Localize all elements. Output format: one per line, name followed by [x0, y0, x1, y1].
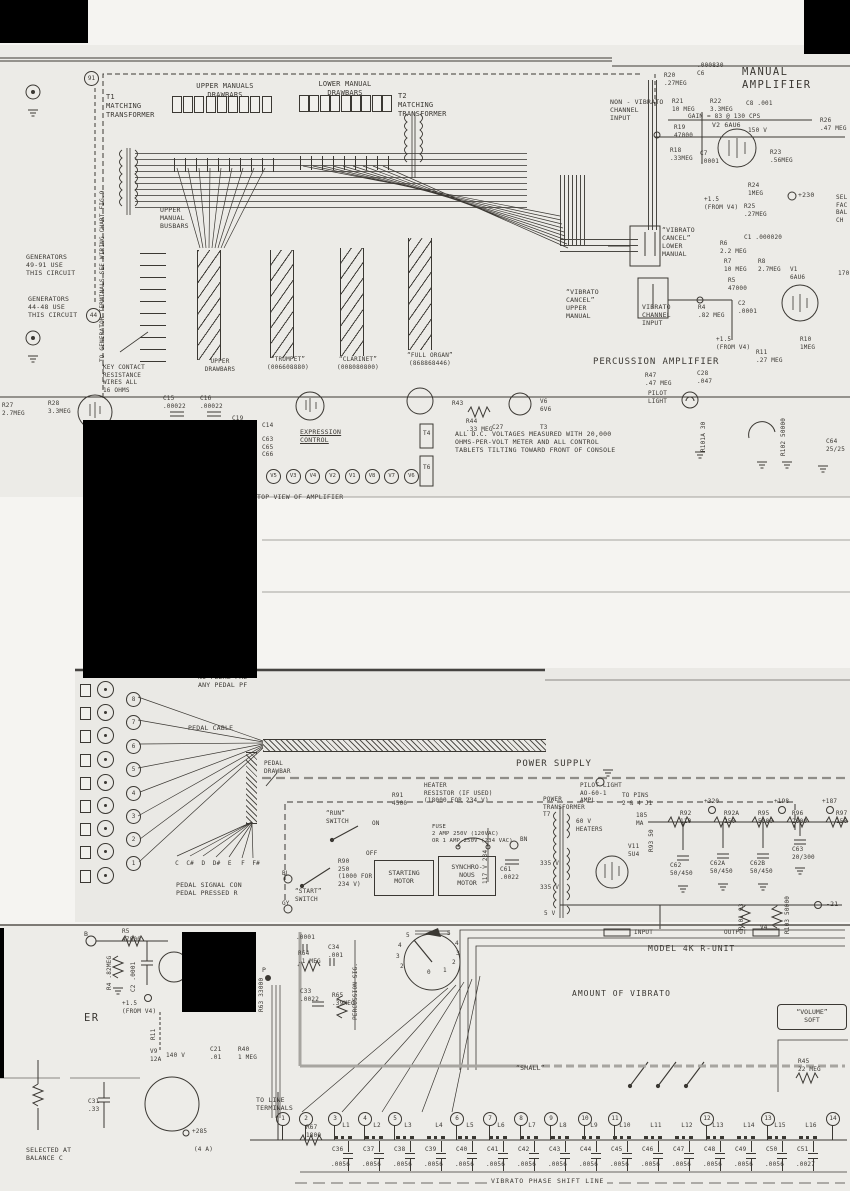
cap-value-C40: .0056	[455, 1161, 474, 1169]
redaction-top-right	[804, 0, 850, 54]
drawbar-lower	[330, 95, 340, 112]
cap-value-C43: .0056	[548, 1161, 567, 1169]
line-terminal-6: 6	[450, 1112, 464, 1126]
coil-label-L14: L14	[741, 1122, 757, 1130]
r64-label: R64 .1 MEG	[298, 950, 321, 965]
pedal-generator	[97, 797, 114, 814]
vibrato-channel-input-label: VIBRATO CHANNEL INPUT	[642, 303, 671, 327]
plus15-v2-label: +1.5 (FROM V4)	[704, 196, 738, 211]
r27-label: R27 2.7MEG	[2, 402, 25, 417]
top-view-label: TOP VIEW OF AMPLIFIER	[257, 493, 343, 501]
pedal-note-C: C	[172, 860, 182, 868]
schematic-scan: MANUAL AMPLIFIER T1 MATCHING TRANSFORMER…	[0, 0, 850, 1191]
cap-value-C37: .0056	[362, 1161, 381, 1169]
c15-label: C15 .00022	[163, 395, 186, 410]
model-4k-label: MODEL 4K R-UNIT	[648, 944, 735, 954]
c16-label: C16 .00022	[200, 395, 223, 410]
cap-symbol-C44	[591, 1153, 601, 1159]
c28-label: C28 .047	[697, 370, 712, 385]
tube-v6: V6	[404, 469, 419, 484]
pedal-note-F#: F#	[251, 860, 261, 868]
r6-label: R6 2.2 MEG	[720, 240, 747, 255]
cap-value-C45: .0056	[610, 1161, 629, 1169]
r47-label: R47 .47 MEG	[645, 372, 672, 387]
coil-L3	[396, 1136, 414, 1144]
coil-L9	[582, 1136, 600, 1144]
r93-label: R93 50	[648, 829, 656, 852]
plus15-v1-label: +1.5 (FROM V4)	[716, 336, 750, 351]
w335b-label: 335 V	[540, 884, 559, 892]
redaction-lower	[182, 932, 256, 1012]
cap-symbol-C41	[498, 1153, 508, 1159]
sel-fac-label: SEL FAC BAL CH	[836, 194, 847, 224]
cap-symbol-C36	[343, 1153, 353, 1159]
c34-label: C34 .001	[328, 944, 343, 959]
gen91-terminal: 91	[84, 71, 99, 86]
v140-label: 140 V	[166, 1052, 185, 1060]
pedal-note-D: D	[198, 860, 208, 868]
r92-label: R92 110	[680, 810, 691, 825]
redaction-left-sliver	[0, 928, 4, 1078]
r25-label: R25 .27MEG	[744, 203, 767, 218]
r11b-label: R11	[150, 1029, 158, 1040]
drawbar-upper	[172, 96, 182, 113]
v4-label: V4	[760, 924, 768, 932]
r7-label: R7 10 MEG	[724, 258, 747, 273]
rotary-pos-5: 5	[406, 932, 410, 940]
t1-label: T1 MATCHING TRANSFORMER	[106, 93, 155, 119]
r26-label: R26 .47 MEG	[820, 117, 847, 132]
cap-label-C49: C49	[735, 1146, 746, 1154]
pedal-key-switch	[80, 870, 91, 883]
cap-value-C44: .0056	[579, 1161, 598, 1169]
plus285-label: +285	[192, 1128, 207, 1136]
tube-v3: V3	[286, 469, 301, 484]
pedal-terminal-8: 8	[126, 692, 141, 707]
c62-label: C62 50/450	[670, 862, 693, 877]
minus21-label: -21	[826, 900, 838, 908]
to-generator-note: TO GENERATOR TERMINALS SEE WIRING CHART …	[99, 190, 107, 362]
pedal-note-C#: C#	[185, 860, 195, 868]
r5-label: R5 47000	[728, 277, 747, 292]
c2b-label: C2 .0001	[130, 962, 138, 993]
w335a-label: 335 V	[540, 860, 559, 868]
pedal-key-switch	[80, 846, 91, 859]
r20-label: R20 .27MEG	[664, 72, 687, 87]
pedal-terminal-3: 3	[126, 809, 141, 824]
bl-label: BL	[282, 870, 290, 878]
coil-label-L3: L3	[400, 1122, 416, 1130]
coil-L4	[427, 1136, 445, 1144]
on-label: ON	[372, 820, 380, 828]
cap-label-C46: C46	[642, 1146, 653, 1154]
cap-symbol-C40	[467, 1153, 477, 1159]
volume-soft-tablet: “VOLUME” SOFT	[777, 1004, 847, 1030]
cap-value-C46: .0056	[641, 1161, 660, 1169]
lower-drawbars-title: LOWER MANUAL DRAWBARS	[305, 80, 385, 98]
c31-label: C31 .33	[88, 1098, 99, 1113]
pedal-generator	[97, 751, 114, 768]
drawbar-lower	[309, 95, 319, 112]
line-terminal-4: 4	[358, 1112, 372, 1126]
pedal-generator	[97, 681, 114, 698]
r101-label: R101 93	[738, 903, 746, 930]
v1-plate-voltage: 170	[838, 270, 849, 278]
r90-label: R90 250 (1000 FOR 234 V)	[338, 858, 372, 888]
cap-label-C37: C37	[363, 1146, 374, 1154]
t4-label: T4	[423, 430, 431, 438]
w5-label: 5 V	[544, 910, 555, 918]
input-label: INPUT	[634, 929, 653, 937]
bn-label: BN	[520, 836, 528, 844]
drawbar-lower	[320, 95, 330, 112]
c8-label: C8 .001	[746, 100, 773, 108]
c7-label: C7 .0001	[700, 150, 719, 165]
line-terminal-2: 2	[299, 1112, 313, 1126]
c2-label: C2 .0001	[738, 300, 757, 315]
pedal-drawbar-label: PEDAL DRAWBAR	[264, 760, 291, 775]
c63-65-66-label: C63 C65 C66	[262, 436, 273, 459]
cap-symbol-C48	[715, 1153, 725, 1159]
plus230-label: +230	[798, 191, 814, 199]
percussion-amplifier-title: PERCUSSION AMPLIFIER	[593, 357, 719, 368]
small-label: “SMALL”	[516, 1064, 545, 1072]
r67-label: R67 1800	[306, 1124, 321, 1139]
line-terminal-14: 14	[826, 1112, 840, 1126]
cap-symbol-C39	[436, 1153, 446, 1159]
gen44-terminal: 44	[86, 308, 101, 323]
pilot-light2-label: PILOT LIGHT AO-60-1 AMPL.	[580, 782, 622, 805]
expression-control-label: EXPRESSION CONTROL	[300, 428, 341, 444]
drawbar-lower	[372, 95, 382, 112]
coil-L12	[675, 1136, 693, 1144]
c62b-label: C62B 50/450	[750, 860, 773, 875]
drawbar-lower	[341, 95, 351, 112]
pedal-terminal-1: 1	[126, 856, 141, 871]
pedal-signal-note: PEDAL SIGNAL CON PEDAL PRESSED R	[176, 881, 242, 897]
ma185-label: 185 MA	[636, 812, 647, 827]
line-terminal-8: 8	[514, 1112, 528, 1126]
plus320-label: +320	[704, 798, 719, 806]
r4b-label: R4 .82MEG	[106, 956, 114, 990]
v1-label: V1 6AU6	[790, 266, 805, 281]
starting-motor-box: STARTING MOTOR	[374, 860, 434, 896]
r91-label: R91 4500	[392, 792, 407, 807]
c6-label: .000830 C6	[697, 62, 724, 77]
line-terminal-stem	[282, 1125, 283, 1140]
pedal-key-switch	[80, 684, 91, 697]
pedal-key-switch	[80, 730, 91, 743]
phase-line-title: VIBRATO PHASE SHIFT LINE	[488, 1177, 607, 1185]
coil-label-L15: L15	[772, 1122, 788, 1130]
redaction-top-left	[0, 0, 88, 43]
upper-drawbars-preset-label: UPPER DRAWBARS	[195, 358, 245, 373]
cap-label-C48: C48	[704, 1146, 715, 1154]
coil-label-L8: L8	[555, 1122, 571, 1130]
drawbar-lower	[361, 95, 371, 112]
tube-v8: V8	[365, 469, 380, 484]
cap-value-C50: .0056	[765, 1161, 784, 1169]
r19-label: R19 47000	[674, 124, 693, 139]
drawbar-lower	[351, 95, 361, 112]
v6-tube-label: V6 6V6	[540, 398, 551, 413]
fuse-note: FUSE 2 AMP 250V (120VAC) OR 1 AMP 250V (…	[432, 824, 513, 845]
line-terminal-11: 11	[608, 1112, 622, 1126]
cap-value-C48: .0056	[703, 1161, 722, 1169]
cap-symbol-C38	[405, 1153, 415, 1159]
pedal-note-D#: D#	[212, 860, 222, 868]
to-pins-label: TO PINS 2 & 4 J1	[622, 792, 653, 807]
c64-label: C64 25/25	[826, 438, 845, 453]
pedal-key-switch	[80, 823, 91, 836]
page3-wires	[0, 925, 850, 1183]
r23-label: R23 .56MEG	[770, 149, 793, 164]
rotary-pos-4: 4	[455, 940, 459, 948]
r95-label: R95 5000	[758, 810, 773, 825]
b-terminal-label: B	[84, 930, 88, 938]
rotary-pos-3: 3	[456, 950, 460, 958]
key-contact-note: KEY CONTACT RESISTANCE WIRES ALL 16 OHMS	[103, 364, 145, 394]
c33-label: C33 .0022	[300, 988, 319, 1003]
coil-L7	[520, 1136, 538, 1144]
coil-L13	[706, 1136, 724, 1144]
start-switch-label: “START” SWITCH	[295, 888, 322, 903]
cap-label-C39: C39	[425, 1146, 436, 1154]
pedal-cable-label: PEDAL CABLE	[188, 724, 233, 732]
heaters-60v-label: 60 V HEATERS	[576, 818, 603, 833]
r24-label: R24 1MEG	[748, 182, 763, 197]
power-transformer-label: POWER TRANSFORMER T7	[543, 796, 585, 819]
plus198-label: +198	[774, 798, 789, 806]
r22-label: R22 3.3MEG	[710, 98, 733, 113]
c0001-label: .0001	[296, 934, 315, 942]
r96-label: R96 2000	[792, 810, 807, 825]
pilot-light1-label: PILOT LIGHT	[648, 390, 667, 405]
r5b-label: R5 47000	[122, 928, 141, 943]
c62a-label: C62A 50/450	[710, 860, 733, 875]
redaction-center	[83, 420, 257, 678]
coil-label-L5: L5	[462, 1122, 478, 1130]
coil-label-L12: L12	[679, 1122, 695, 1130]
cap-symbol-C50	[777, 1153, 787, 1159]
line-terminal-stem	[456, 1125, 457, 1140]
cap-label-C43: C43	[549, 1146, 560, 1154]
gen91-note: GENERATORS 49-91 USE THIS CIRCUIT	[26, 253, 75, 277]
pedal-note-F: F	[238, 860, 248, 868]
line-terminal-7: 7	[483, 1112, 497, 1126]
cap-label-C42: C42	[518, 1146, 529, 1154]
v2-plate-voltage: 150 V	[748, 127, 767, 135]
cap-symbol-C47	[684, 1153, 694, 1159]
vibrato-cancel-lower-label: “VIBRATO CANCEL” LOWER MANUAL	[662, 226, 695, 259]
p-terminal-label: P	[262, 966, 266, 974]
pedal-key-switch	[80, 754, 91, 767]
line-terminal-9: 9	[544, 1112, 558, 1126]
t2-label: T2 MATCHING TRANSFORMER	[398, 92, 447, 118]
line-terminal-12: 12	[700, 1112, 714, 1126]
r103-label: R103 50000	[784, 896, 792, 934]
vibrato-cancel-upper-label: “VIBRATO CANCEL” UPPER MANUAL	[566, 288, 599, 321]
upper-busbars-label: UPPER MANUAL BUSBARS	[160, 206, 189, 230]
r18-label: R18 .33MEG	[670, 147, 693, 162]
r28-label: R28 3.3MEG	[48, 400, 71, 415]
cap-label-C40: C40	[456, 1146, 467, 1154]
line-terminal-13: 13	[761, 1112, 775, 1126]
cap-label-C45: C45	[611, 1146, 622, 1154]
selected-at-note: SELECTED AT BALANCE C	[26, 1146, 71, 1162]
coil-L16	[799, 1136, 817, 1144]
cap-label-C44: C44	[580, 1146, 591, 1154]
r21-label: R21 10 MEG	[672, 98, 695, 113]
coil-L8	[551, 1136, 569, 1144]
c1-label: C1 .000020	[744, 234, 782, 242]
to-line-terminals-label: TO LINE TERMINALS	[256, 1096, 293, 1112]
drawbar-lower	[299, 95, 309, 112]
plus15b-label: +1.5 (FROM V4)	[122, 1000, 156, 1015]
cap-label-C36: C36	[332, 1146, 343, 1154]
cap-value-C51: .0027	[796, 1161, 815, 1169]
pedal-generator	[97, 774, 114, 791]
cap-symbol-C43	[560, 1153, 570, 1159]
pedal-key-switch	[80, 707, 91, 720]
er-fragment: ER	[84, 1012, 99, 1025]
cap-value-C47: .0056	[672, 1161, 691, 1169]
r63-label: R63 33000	[258, 978, 266, 1012]
output-label: OUTPUT	[724, 929, 747, 937]
rotary-pos-3: 3	[396, 953, 400, 961]
dc-voltages-note: ALL D.C. VOLTAGES MEASURED WITH 20,000 O…	[455, 430, 615, 454]
c63-label: C63 20/300	[792, 846, 815, 861]
r4-label: R4 .82 MEG	[698, 304, 725, 319]
coil-L2	[365, 1136, 383, 1144]
r10-label: R10 1MEG	[800, 336, 815, 351]
cap-value-C49: .0056	[734, 1161, 753, 1169]
r43-label: R43	[452, 400, 463, 408]
r8-label: R8 2.7MEG	[758, 258, 781, 273]
cap-value-C39: .0056	[424, 1161, 443, 1169]
tube-v1: V1	[345, 469, 360, 484]
pedal-generator	[97, 867, 114, 884]
cap-symbol-C37	[374, 1153, 384, 1159]
coil-label-L16: L16	[803, 1122, 819, 1130]
line-terminal-5: 5	[388, 1112, 402, 1126]
pedal-terminal-6: 6	[126, 739, 141, 754]
cap-symbol-C51	[808, 1153, 818, 1159]
rotary-pos-0: 0	[427, 969, 431, 977]
rotary-pos-2: 2	[400, 963, 404, 971]
rotary-pos-1: 1	[443, 967, 447, 975]
cap-value-C38: .0056	[393, 1161, 412, 1169]
trumpet-preset-label: “TRUMPET” (006608880)	[258, 356, 318, 371]
line-terminal-stem	[832, 1125, 833, 1140]
cap-label-C47: C47	[673, 1146, 684, 1154]
off-label: OFF	[366, 850, 377, 858]
cap-value-C36: .0056	[331, 1161, 350, 1169]
non-vibrato-input-label: NON - VIBRATO CHANNEL INPUT	[610, 98, 663, 122]
cap-label-C41: C41	[487, 1146, 498, 1154]
line-terminal-3: 3	[328, 1112, 342, 1126]
rotary-pos-2: 2	[452, 959, 456, 967]
manual-amplifier-title: MANUAL AMPLIFIER	[742, 66, 812, 92]
cap-symbol-C42	[529, 1153, 539, 1159]
r102-label: R102 50000	[780, 418, 788, 456]
clarinet-preset-label: “CLARINET” (008080800)	[328, 356, 388, 371]
coil-label-L4: L4	[431, 1122, 447, 1130]
r40-label: R40 1 MEG	[238, 1046, 257, 1061]
rotary-pos-4: 4	[398, 942, 402, 950]
cap-label-C51: C51	[797, 1146, 808, 1154]
c14-label: C14	[262, 422, 273, 430]
r97-label: R97 150	[836, 810, 847, 825]
v117-label: 117 V 234	[482, 850, 490, 884]
coil-L6	[489, 1136, 507, 1144]
amount-of-vibrato-label: AMOUNT OF VIBRATO	[572, 989, 671, 999]
coil-label-L2: L2	[369, 1122, 385, 1130]
rotary-pos-5: 5	[447, 930, 451, 938]
c21-label: C21 .01	[210, 1046, 221, 1061]
cap-symbol-C46	[653, 1153, 663, 1159]
cap-value-C41: .0056	[486, 1161, 505, 1169]
t6-label: T6	[423, 464, 431, 472]
coil-L5	[458, 1136, 476, 1144]
line-terminal-stem	[394, 1125, 395, 1140]
c61-label: C61 .0022	[500, 866, 519, 881]
gain-note: GAIN = 83 @ 130 CPS	[688, 113, 760, 121]
pedal-terminal-4: 4	[126, 786, 141, 801]
drawbar-lower	[382, 95, 392, 112]
heater-resistor-note: HEATER RESISTOR (IF USED) (18000 FOR 234…	[424, 782, 493, 805]
r45-label: R45 22 MEG	[798, 1058, 821, 1073]
line-terminal-1: 1	[276, 1112, 290, 1126]
upper-drawbars-title: UPPER MANUALS DRAWBARS	[185, 82, 265, 100]
coil-L14	[737, 1136, 755, 1144]
gy-label: GY	[282, 900, 290, 908]
cap-symbol-C49	[746, 1153, 756, 1159]
tube-v5: V5	[266, 469, 281, 484]
percussion-sig-label: PERCUSSION SIG.	[352, 963, 360, 1020]
v11-label: V11 5U4	[628, 843, 639, 858]
r92a-label: R92A 250	[724, 810, 739, 825]
r11-label: R11 .27 MEG	[756, 349, 783, 364]
run-switch-label: “RUN” SWITCH	[326, 810, 349, 825]
pedal-key-switch	[80, 800, 91, 813]
cap-label-C38: C38	[394, 1146, 405, 1154]
coil-L11	[644, 1136, 662, 1144]
full-organ-preset-label: “FULL ORGAN” (868868446)	[398, 352, 462, 367]
line-terminal-10: 10	[578, 1112, 592, 1126]
v2-label: V2 6AU6	[712, 121, 741, 129]
cap-label-C50: C50	[766, 1146, 777, 1154]
pedal-key-switch	[80, 777, 91, 790]
gen44-note: GENERATORS 44-48 USE THIS CIRCUIT	[28, 295, 77, 319]
r101a-label: R101A 30	[700, 422, 708, 453]
coil-label-L11: L11	[648, 1122, 664, 1130]
tube-v2: V2	[325, 469, 340, 484]
four-a-label: (4 A)	[194, 1146, 213, 1154]
plus187-label: +187	[822, 798, 837, 806]
coil-L1	[334, 1136, 352, 1144]
power-supply-title: POWER SUPPLY	[516, 759, 592, 770]
coil-L10	[613, 1136, 631, 1144]
coil-L15	[768, 1136, 786, 1144]
cap-value-C42: .0056	[517, 1161, 536, 1169]
pedal-note-E: E	[225, 860, 235, 868]
v9-label: V9 12A	[150, 1048, 161, 1063]
cap-symbol-C45	[622, 1153, 632, 1159]
